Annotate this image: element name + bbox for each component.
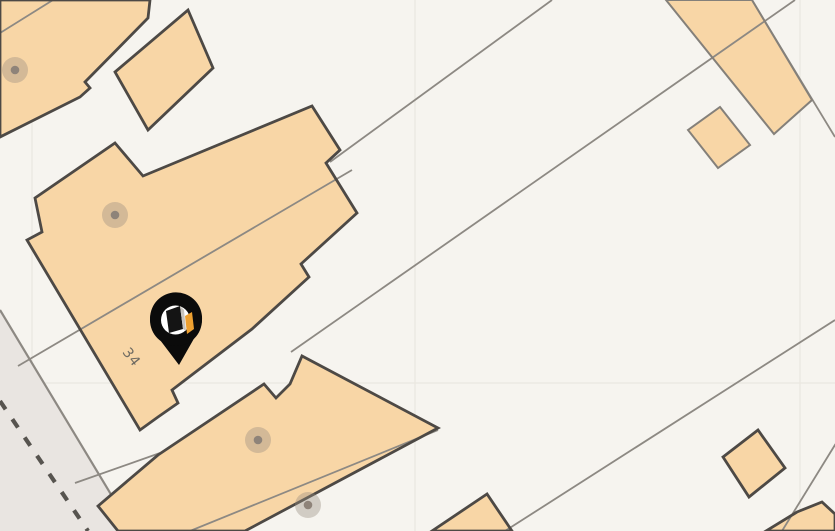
- address-point-dot: [304, 501, 313, 510]
- address-point-dot: [254, 436, 263, 445]
- address-point-dot: [111, 211, 120, 220]
- address-point-dot: [11, 66, 20, 75]
- map-viewport[interactable]: 34: [0, 0, 835, 531]
- cadastral-map-canvas: 34: [0, 0, 835, 531]
